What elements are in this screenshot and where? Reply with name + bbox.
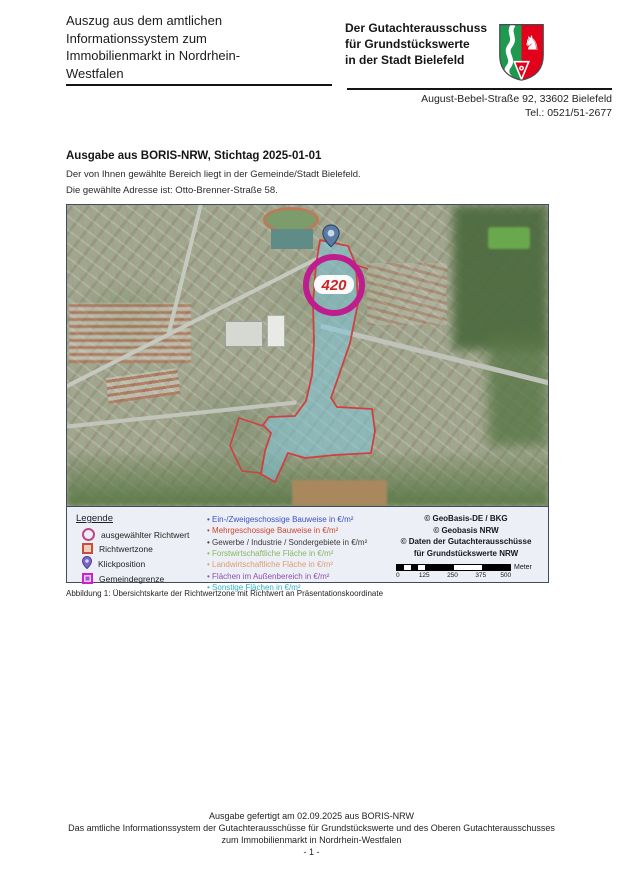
legend-symbol-label: ausgewählter Richtwert bbox=[101, 530, 189, 540]
report-title: Auszug aus dem amtlichen Informationssys… bbox=[66, 12, 311, 83]
page-number: - 1 - bbox=[0, 846, 623, 858]
copyright-line: © GeoBasis-DE / BKG bbox=[390, 513, 542, 525]
boris-report-page: Auszug aus dem amtlichen Informationssys… bbox=[0, 0, 623, 893]
scale-bar bbox=[396, 564, 511, 571]
richtwert-value: 420 bbox=[320, 277, 347, 294]
org-phone: Tel.: 0521/51-2677 bbox=[300, 107, 612, 121]
aerial-map: 420 bbox=[67, 205, 548, 506]
page-footer: Ausgabe gefertigt am 02.09.2025 aus BORI… bbox=[0, 810, 623, 859]
legend-categories-column: Ein-/Zweigeschossige Bauweise in €/m² Me… bbox=[207, 514, 390, 577]
committee-name-line: in der Stadt Bielefeld bbox=[345, 52, 505, 68]
legend-category: Forstwirtschaftliche Fläche in €/m² bbox=[207, 548, 390, 559]
scale-bar-segment bbox=[454, 565, 482, 570]
footer-line: zum Immobilienmarkt in Nordrhein-Westfal… bbox=[0, 834, 623, 846]
richtwertzone-icon bbox=[82, 543, 93, 554]
scale-tick: 125 bbox=[419, 571, 430, 580]
legend-symbol-row: Richtwertzone bbox=[82, 543, 201, 554]
legend-symbol-label: Gemeindegrenze bbox=[99, 574, 164, 584]
copyright-line: © Daten der Gutachterausschüsse bbox=[390, 536, 542, 548]
committee-name: Der Gutachterausschuss für Grundstückswe… bbox=[345, 20, 505, 69]
header-divider-left bbox=[66, 84, 332, 86]
map-legend: Legende ausgewählter Richtwert Richtwert… bbox=[67, 506, 548, 582]
intro-line-address: Die gewählte Adresse ist: Otto-Brenner-S… bbox=[66, 185, 278, 196]
org-address-block: August-Bebel-Straße 92, 33602 Bielefeld … bbox=[300, 93, 612, 120]
scale-bar-block: Meter 0 125 250 375 500 bbox=[390, 562, 542, 580]
legend-symbol-label: Klickposition bbox=[98, 559, 145, 569]
legend-symbols-column: Legende ausgewählter Richtwert Richtwert… bbox=[73, 512, 201, 577]
map-overlay: 420 bbox=[67, 205, 548, 506]
scale-bar-segment bbox=[425, 565, 453, 570]
legend-category: Landwirtschaftliche Fläche in €/m² bbox=[207, 559, 390, 570]
gemeindegrenze-icon bbox=[82, 573, 93, 584]
legend-symbol-label: Richtwertzone bbox=[99, 544, 153, 554]
committee-name-line: für Grundstückswerte bbox=[345, 36, 505, 52]
intro-line-municipality: Der von Ihnen gewählte Bereich liegt in … bbox=[66, 169, 361, 180]
scale-bar-segment bbox=[404, 565, 411, 570]
scale-bar-segment bbox=[411, 565, 418, 570]
selected-richtwert-icon bbox=[82, 528, 95, 541]
report-title-line: Informationssystem zum bbox=[66, 30, 311, 48]
footer-line: Das amtliche Informationssystem der Guta… bbox=[0, 822, 623, 834]
org-address: August-Bebel-Straße 92, 33602 Bielefeld bbox=[300, 93, 612, 107]
legend-category: Ein-/Zweigeschossige Bauweise in €/m² bbox=[207, 514, 390, 525]
legend-symbol-row: Gemeindegrenze bbox=[82, 573, 201, 584]
scale-tick: 0 bbox=[396, 571, 400, 580]
scale-tick: 250 bbox=[447, 571, 458, 580]
header-divider-right bbox=[347, 88, 612, 90]
legend-category: Flächen im Außenbereich in €/m² bbox=[207, 571, 390, 582]
legend-copyright-column: © GeoBasis-DE / BKG © Geobasis NRW © Dat… bbox=[390, 512, 542, 577]
legend-category: Mehrgeschossige Bauweise in €/m² bbox=[207, 525, 390, 536]
section-heading: Ausgabe aus BORIS-NRW, Stichtag 2025-01-… bbox=[66, 150, 321, 162]
report-title-line: Immobilienmarkt in Nordrhein- bbox=[66, 47, 311, 65]
scale-ticks: 0 125 250 375 500 bbox=[396, 571, 509, 580]
committee-name-line: Der Gutachterausschuss bbox=[345, 20, 505, 36]
scale-unit: Meter bbox=[514, 563, 532, 573]
zone-boundary-extension bbox=[230, 418, 263, 473]
scale-bar-segment bbox=[482, 565, 510, 570]
map-figure: 420 Legende ausgewählter Richtwert Richt… bbox=[66, 204, 549, 583]
scale-tick: 500 bbox=[500, 571, 511, 580]
click-position-pin-icon bbox=[82, 556, 92, 571]
legend-symbol-row: Klickposition bbox=[82, 556, 201, 571]
scale-tick: 375 bbox=[475, 571, 486, 580]
legend-symbol-row: ausgewählter Richtwert bbox=[82, 528, 201, 541]
legend-category: Gewerbe / Industrie / Sondergebiete in €… bbox=[207, 537, 390, 548]
scale-bar-segment bbox=[418, 565, 425, 570]
copyright-line: © Geobasis NRW bbox=[390, 525, 542, 537]
svg-text:♞: ♞ bbox=[523, 32, 540, 55]
report-title-line: Auszug aus dem amtlichen bbox=[66, 12, 311, 30]
copyright-line: für Grundstückswerte NRW bbox=[390, 548, 542, 560]
figure-caption: Abbildung 1: Übersichtskarte der Richtwe… bbox=[66, 589, 383, 598]
scale-bar-segment bbox=[397, 565, 404, 570]
footer-line: Ausgabe gefertigt am 02.09.2025 aus BORI… bbox=[0, 810, 623, 822]
nrw-coat-of-arms-icon: ♞ bbox=[497, 23, 546, 86]
legend-title: Legende bbox=[76, 513, 201, 524]
report-title-line: Westfalen bbox=[66, 65, 311, 83]
